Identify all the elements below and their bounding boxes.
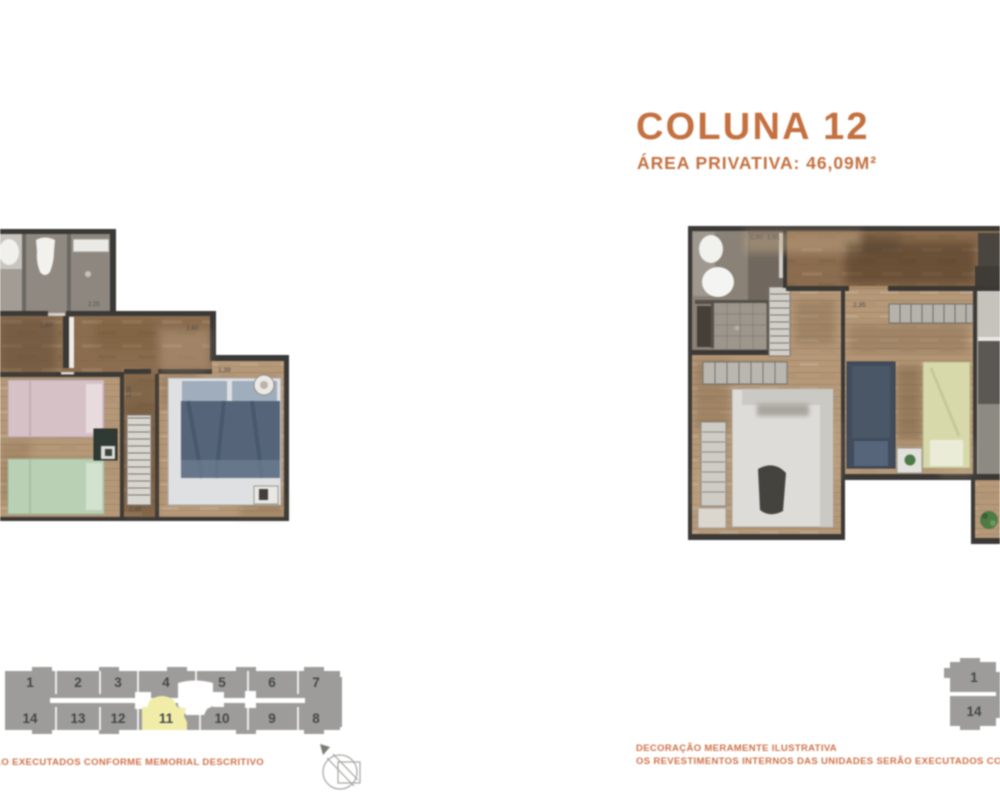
svg-text:9: 9 [268, 711, 276, 726]
svg-text:3,38: 3,38 [127, 386, 133, 398]
svg-text:3: 3 [114, 675, 122, 690]
svg-text:14: 14 [22, 711, 38, 726]
svg-text:5: 5 [218, 675, 226, 690]
svg-text:4: 4 [162, 675, 170, 690]
svg-text:10: 10 [214, 711, 229, 726]
svg-text:6: 6 [268, 675, 276, 690]
svg-text:1,60: 1,60 [40, 322, 53, 329]
svg-text:COLUNA 12: COLUNA 12 [636, 106, 870, 148]
svg-text:ÁREA PRIVATIVA: 46,09M²: ÁREA PRIVATIVA: 46,09M² [637, 152, 877, 173]
svg-text:8: 8 [312, 711, 320, 726]
svg-text:1: 1 [970, 670, 978, 685]
svg-text:2,60: 2,60 [186, 325, 199, 332]
svg-text:1,90: 1,90 [750, 234, 763, 241]
svg-text:14: 14 [966, 704, 982, 719]
svg-text:12: 12 [110, 711, 125, 726]
svg-text:2,35: 2,35 [853, 302, 866, 309]
svg-text:7: 7 [312, 675, 320, 690]
svg-text:2: 2 [74, 675, 82, 690]
svg-text:RÃO EXECUTADOS CONFORME MEMORI: RÃO EXECUTADOS CONFORME MEMORIAL DESCRIT… [0, 757, 264, 768]
svg-text:1: 1 [26, 675, 34, 690]
svg-text:OS REVESTIMENTOS INTERNOS DAS: OS REVESTIMENTOS INTERNOS DAS UNIDADES S… [636, 756, 1000, 767]
svg-text:11: 11 [159, 711, 174, 726]
svg-text:13: 13 [70, 711, 86, 726]
svg-text:2,45: 2,45 [129, 506, 142, 513]
svg-text:1,39: 1,39 [218, 367, 231, 374]
svg-text:DECORAÇÃO MERAMENTE ILUSTRATIV: DECORAÇÃO MERAMENTE ILUSTRATIVA [636, 743, 837, 754]
svg-text:2,25: 2,25 [88, 302, 100, 308]
svg-text:1,91: 1,91 [767, 234, 780, 241]
